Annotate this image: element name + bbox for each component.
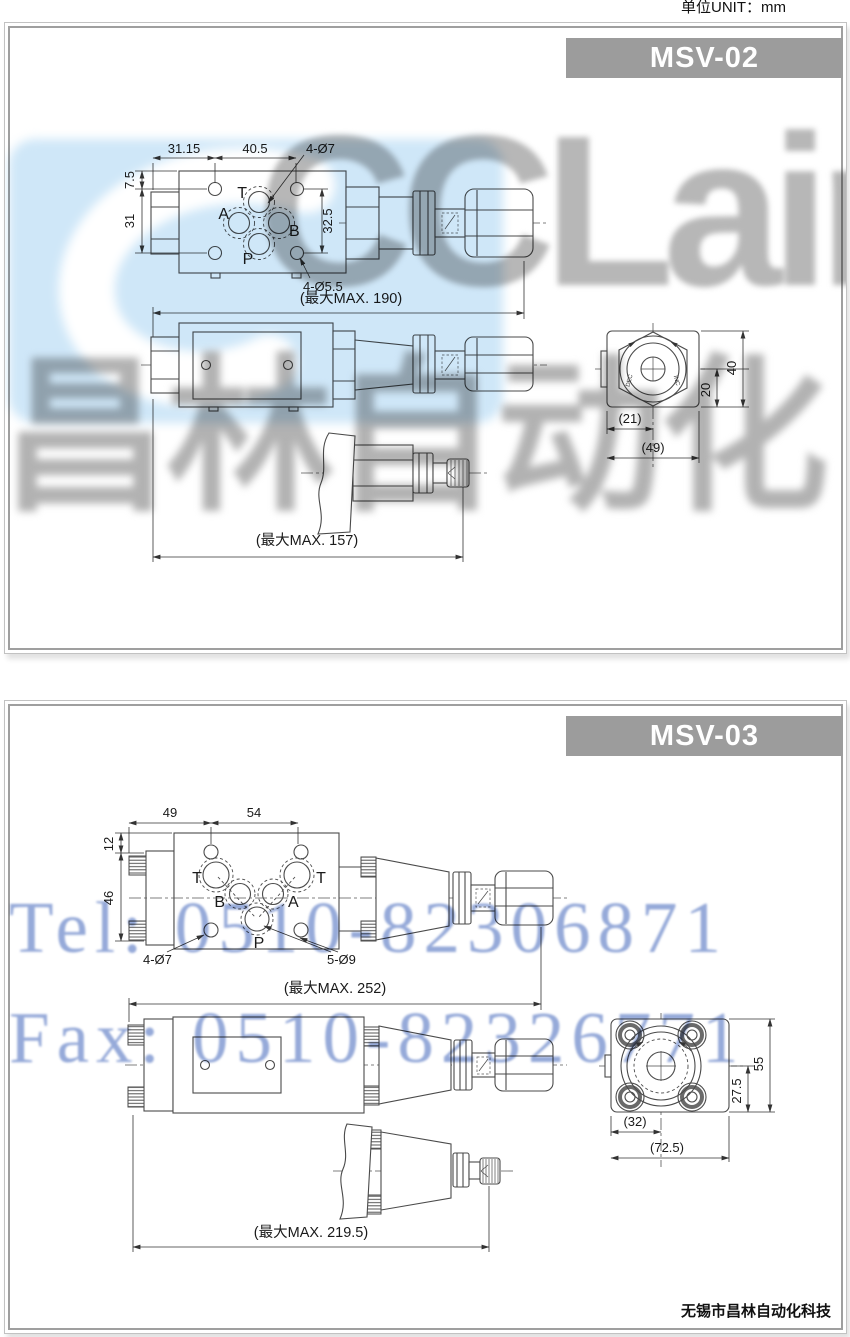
port-label-p: P [254, 935, 265, 952]
msv03-drawing: T B A T P 4-Ø7 5-Ø9 49 54 12 46 [5, 701, 846, 1333]
msv02-detail-view: (最大MAX. 157) [153, 399, 487, 562]
dim-32-5: 32.5 [320, 208, 335, 233]
dim-21: (21) [618, 411, 641, 426]
msv03-title-banner: MSV-03 [566, 716, 843, 756]
msv02-side-profile [339, 187, 547, 259]
port-label-b: B [214, 894, 225, 911]
unit-note: 单位UNIT：mm [681, 0, 786, 17]
dim-46: 46 [101, 891, 116, 905]
msv02-panel: MSV-02 T A B P 4-Ø7 [4, 22, 847, 654]
msv03-detail-length-label: (最大MAX. 219.5) [254, 1224, 368, 1241]
msv02-top-view: T A B P 4-Ø7 4-Ø5.5 31.15 40.5 7.5 31 [122, 141, 346, 294]
msv03-overall-length-label: (最大MAX. 252) [284, 980, 386, 997]
dim-54: 54 [247, 805, 261, 820]
dim-49: (49) [641, 440, 664, 455]
dim-31: 31 [122, 214, 137, 228]
dim-7-5: 7.5 [122, 171, 137, 189]
port-label-b: B [289, 223, 300, 240]
dim-49: 49 [163, 805, 177, 820]
holes-right-label: 5-Ø9 [327, 952, 356, 967]
port-label-t: T [237, 185, 247, 202]
dim-32: (32) [623, 1114, 646, 1129]
port-label-t-right: T [316, 870, 326, 887]
dim-55: 55 [751, 1057, 766, 1071]
holes-top-label: 4-Ø7 [306, 141, 335, 156]
dim-12: 12 [101, 837, 116, 851]
port-label-t-left: T [192, 870, 202, 887]
msv02-end-view: DEC INC (21) (49) 20 40 [595, 323, 749, 469]
msv02-overall-length-label: (最大MAX. 190) [300, 290, 402, 307]
dim-72-5: (72.5) [650, 1140, 684, 1155]
holes-left-label: 4-Ø7 [143, 952, 172, 967]
dim-27-5: 27.5 [729, 1078, 744, 1103]
msv03-top-view: T B A T P 4-Ø7 5-Ø9 49 54 12 46 [101, 805, 356, 967]
port-label-a: A [288, 894, 299, 911]
msv02-detail-length-label: (最大MAX. 157) [256, 532, 358, 549]
msv02-title-banner: MSV-02 [566, 38, 843, 78]
dim-20: 20 [698, 383, 713, 397]
company-name: 无锡市昌林自动化科技 [681, 1300, 831, 1321]
port-label-a: A [218, 206, 229, 223]
msv02-drawing: T A B P 4-Ø7 4-Ø5.5 31.15 40.5 7.5 31 [5, 23, 846, 653]
msv02-side-view [141, 323, 547, 411]
port-label-p: P [243, 251, 254, 268]
msv03-detail-view: (最大MAX. 219.5) [133, 1115, 513, 1252]
msv03-panel: MSV-03 T B [4, 700, 847, 1334]
dim-40-5: 40.5 [242, 141, 267, 156]
msv03-side-view [125, 1017, 567, 1113]
dim-40: 40 [724, 361, 739, 375]
msv03-end-view: 27.5 55 (32) (72.5) [599, 1013, 775, 1167]
dim-31-15: 31.15 [168, 141, 201, 156]
